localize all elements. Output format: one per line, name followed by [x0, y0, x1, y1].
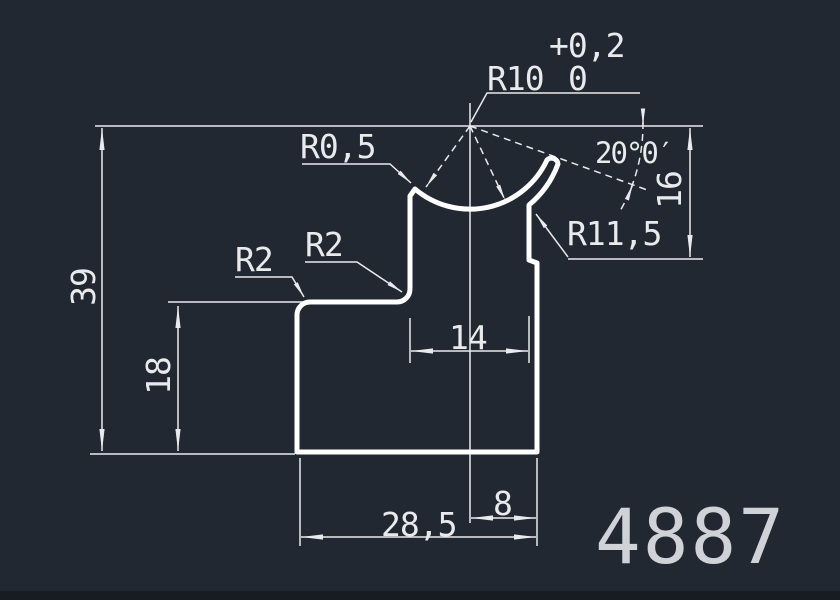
label-dim-28-5: 28,5 — [381, 508, 456, 541]
label-tolerance-lower: 0 — [568, 62, 587, 95]
dimension-lines — [102, 128, 690, 537]
part-number: 4887 — [595, 499, 786, 575]
leader-lines — [235, 93, 640, 297]
label-radius-r10: R10 — [487, 62, 544, 95]
leader-r2-right — [305, 262, 402, 292]
leader-r05 — [302, 164, 411, 183]
label-dim-8: 8 — [493, 487, 512, 520]
label-dim-18: 18 — [141, 341, 175, 411]
label-dim-16: 16 — [652, 155, 686, 225]
leader-r2-left — [235, 277, 304, 297]
profile-shape — [297, 158, 558, 452]
radius-ray-right — [470, 126, 505, 200]
part-outline — [297, 158, 558, 452]
label-dim-14: 14 — [449, 321, 487, 354]
label-radius-r115: R11,5 — [567, 217, 661, 250]
label-tolerance-upper: +0,2 — [549, 29, 624, 62]
label-radius-r05: R0,5 — [300, 130, 375, 163]
label-dim-39: 39 — [66, 252, 100, 322]
radius-ray-left — [426, 126, 470, 187]
cad-drawing-canvas: +0,2 0 R10 R0,5 R2 R2 R11,5 20°0′ 39 18 … — [0, 0, 840, 600]
label-radius-r2-right: R2 — [305, 228, 343, 261]
leader-r115 — [536, 214, 568, 257]
angle-arrow-bottom — [629, 185, 633, 196]
label-radius-r2-left: R2 — [235, 243, 273, 276]
bottom-edge-strip — [0, 591, 840, 600]
